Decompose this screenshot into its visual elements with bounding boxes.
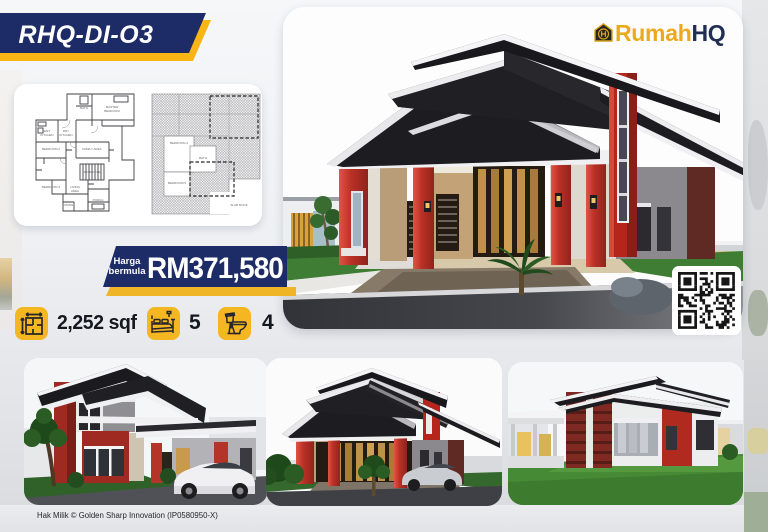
svg-text:BEDROOM 2: BEDROOM 2 [42,147,60,151]
svg-text:BEDROOM 5: BEDROOM 5 [168,181,186,185]
svg-text:BEDROOM: BEDROOM [104,109,120,113]
svg-text:BATH: BATH [199,156,207,160]
svg-text:PORCH: PORCH [93,198,104,202]
svg-text:FAMILY AREA: FAMILY AREA [82,147,101,151]
svg-text:BEDROOM 3: BEDROOM 3 [42,185,60,189]
svg-text:DINING: DINING [63,203,74,207]
svg-text:STAIRCASE: STAIRCASE [84,170,101,174]
svg-text:KITCHEN: KITCHEN [59,133,72,137]
svg-text:AREA: AREA [71,189,79,193]
svg-text:SLAB ROOF: SLAB ROOF [230,203,247,207]
svg-text:KITCHEN: KITCHEN [40,133,53,137]
svg-text:BATH: BATH [80,106,88,110]
svg-text:BEDROOM 4: BEDROOM 4 [170,141,188,145]
